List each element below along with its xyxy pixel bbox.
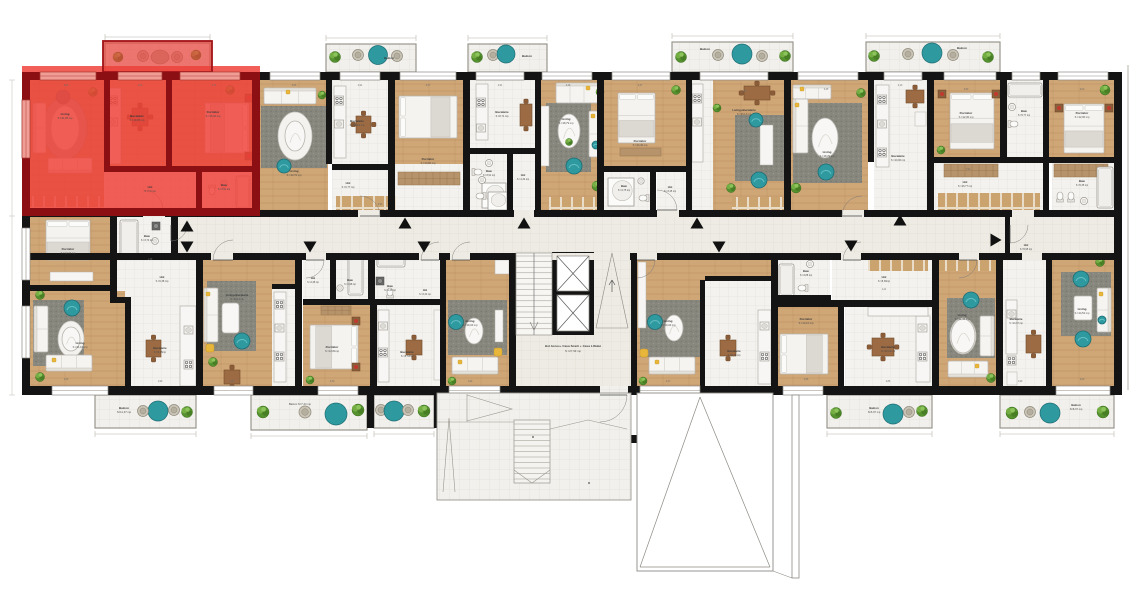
svg-text:Hol: Hol: [882, 275, 887, 279]
svg-text:Living: Living: [958, 313, 967, 317]
svg-text:3,87: 3,87: [230, 381, 235, 383]
svg-text:S =3,74 mp: S =3,74 mp: [141, 239, 154, 242]
svg-text:Hol: Hol: [521, 173, 526, 177]
svg-text:3,30: 3,30: [330, 381, 335, 383]
svg-text:S =13,60 mp: S =13,60 mp: [421, 161, 436, 165]
svg-text:Living: Living: [664, 319, 673, 323]
svg-text:Balcon: Balcon: [1071, 403, 1081, 407]
svg-text:Balcon: Balcon: [119, 406, 129, 410]
svg-text:Balcon: Balcon: [869, 406, 879, 410]
svg-text:S=11,37 mp: S=11,37 mp: [117, 410, 132, 414]
svg-text:S =1,98 mp: S =1,98 mp: [344, 284, 357, 286]
svg-text:Balcon S=7,44 mp: Balcon S=7,44 mp: [289, 402, 312, 406]
svg-text:S =10,12 mp: S =10,12 mp: [350, 123, 365, 127]
svg-text:Baie: Baie: [347, 278, 353, 282]
svg-text:1,90: 1,90: [158, 381, 163, 383]
svg-text:Dormitor: Dormitor: [326, 345, 339, 349]
svg-text:3,48: 3,48: [566, 85, 571, 87]
svg-text:2,91: 2,91: [498, 85, 503, 87]
svg-text:S =9,05mp: S =9,05mp: [154, 351, 167, 354]
svg-text:S =1,45 mp: S =1,45 mp: [384, 290, 397, 292]
svg-text:Hol: Hol: [963, 180, 968, 184]
svg-text:Dormitor: Dormitor: [422, 157, 435, 161]
svg-text:2,91: 2,91: [358, 85, 363, 87]
svg-text:S =20,13 mp: S =20,13 mp: [737, 113, 752, 116]
svg-text:Hol Acces+ Casa Scarii + Casa: Hol Acces+ Casa Scarii + Casa Liftului: [545, 344, 601, 348]
svg-text:3,71: 3,71: [212, 85, 217, 87]
svg-text:S =5,95 mp: S =5,95 mp: [1020, 248, 1033, 251]
svg-text:S =8,76 mp: S =8,76 mp: [728, 354, 741, 357]
svg-text:Bucatarie: Bucatarie: [881, 345, 895, 349]
svg-text:Living: Living: [1078, 307, 1087, 311]
svg-text:S =8,72mp: S =8,72mp: [401, 355, 414, 358]
svg-text:S =24,14 mp: S =24,14 mp: [230, 298, 244, 301]
svg-text:Hol: Hol: [160, 275, 165, 279]
svg-text:S =13,10 mp: S =13,10 mp: [799, 321, 814, 325]
svg-text:S =4,88 mp: S =4,88 mp: [800, 274, 813, 277]
svg-text:Living: Living: [823, 150, 832, 154]
svg-text:Living: Living: [76, 341, 85, 345]
svg-text:S =14,40 mp: S =14,40 mp: [633, 143, 648, 147]
svg-text:2,10: 2,10: [898, 85, 903, 87]
svg-text:3,17: 3,17: [666, 381, 671, 383]
svg-text:S =18,79 mp: S =18,79 mp: [559, 121, 574, 125]
svg-text:1,90: 1,90: [1018, 381, 1023, 383]
svg-text:Baie: Baie: [621, 184, 627, 188]
svg-text:Hol: Hol: [346, 181, 351, 185]
svg-text:Hol: Hol: [668, 185, 673, 189]
svg-text:Hol: Hol: [1024, 243, 1029, 247]
svg-text:S =4,5e mp: S =4,5e mp: [218, 188, 231, 191]
svg-text:S =12,30 mp: S =12,30 mp: [959, 115, 974, 119]
svg-text:Bucatarie: Bucatarie: [130, 114, 144, 118]
svg-text:Bucatarie: Bucatarie: [400, 350, 414, 354]
svg-text:S =19,34 mp: S =19,34 mp: [463, 323, 478, 327]
svg-text:4,21: 4,21: [742, 91, 747, 93]
svg-text:3,80: 3,80: [964, 89, 969, 91]
svg-text:S =12,81mp: S =12,81mp: [325, 349, 340, 353]
svg-text:Dormitor: Dormitor: [634, 139, 647, 143]
svg-text:S =3,34 mp: S =3,34 mp: [419, 294, 432, 296]
svg-text:Bucatarie: Bucatarie: [727, 349, 741, 353]
svg-text:3,45: 3,45: [824, 89, 829, 91]
svg-text:Hol: Hol: [148, 185, 153, 189]
svg-text:Baie: Baie: [387, 284, 393, 288]
svg-text:Dormitor: Dormitor: [960, 111, 973, 115]
svg-text:5,93: 5,93: [378, 204, 383, 206]
svg-text:Balcon: Balcon: [700, 47, 710, 51]
svg-text:1,38: 1,38: [148, 259, 153, 261]
svg-text:3,47: 3,47: [638, 85, 643, 87]
svg-text:1,90: 1,90: [64, 379, 69, 381]
svg-text:3,05: 3,05: [64, 85, 69, 87]
svg-text:S =2,38 mp: S =2,38 mp: [307, 282, 320, 284]
svg-text:Balcon: Balcon: [522, 54, 532, 58]
svg-text:Baie: Baie: [1079, 179, 1085, 183]
svg-text:S =10,07 mp: S =10,07 mp: [1009, 322, 1023, 325]
svg-text:S =19,34 mp: S =19,34 mp: [661, 323, 676, 327]
svg-text:S =6,77 mp: S =6,77 mp: [342, 186, 355, 189]
svg-text:S =8,71 mp: S =8,71 mp: [496, 115, 509, 118]
svg-text:1,21: 1,21: [882, 289, 887, 291]
svg-text:S=8,07 mp: S=8,07 mp: [1070, 407, 1083, 411]
svg-text:Living+Bucatarie: Living+Bucatarie: [732, 108, 756, 112]
svg-text:S =12,44 mp: S =12,44 mp: [61, 251, 76, 255]
svg-text:S =3,91 mp: S =3,91 mp: [483, 174, 496, 177]
svg-text:S =10,24 mp: S =10,24 mp: [881, 350, 896, 353]
svg-text:S =3,45 mp: S =3,45 mp: [664, 190, 677, 193]
svg-text:Bucatarie: Bucatarie: [153, 346, 167, 350]
svg-text:S =5,35 mp: S =5,35 mp: [1076, 184, 1089, 187]
svg-text:S =21,46 mp: S =21,46 mp: [955, 317, 970, 321]
svg-text:3,37: 3,37: [426, 85, 431, 87]
svg-text:Baie: Baie: [221, 183, 227, 187]
svg-text:S =12,00 mp: S =12,00 mp: [1075, 115, 1090, 119]
svg-text:Bucatarie: Bucatarie: [1010, 317, 1023, 321]
svg-text:7,93: 7,93: [966, 169, 971, 171]
svg-text:S =21,95 mp: S =21,95 mp: [58, 116, 73, 120]
svg-text:1,90: 1,90: [468, 381, 473, 383]
svg-text:Bucatarie: Bucatarie: [891, 154, 905, 158]
svg-text:Baie: Baie: [803, 269, 809, 273]
svg-text:S =5,77 mp: S =5,77 mp: [1018, 114, 1031, 117]
svg-text:Living+Bucatarie: Living+Bucatarie: [226, 293, 249, 297]
svg-text:Baie: Baie: [144, 234, 150, 238]
svg-text:Baie: Baie: [486, 169, 492, 173]
svg-text:S =14,52 mp: S =14,52 mp: [1075, 311, 1090, 315]
svg-text:Living: Living: [61, 112, 70, 116]
svg-text:Balcon: Balcon: [384, 56, 394, 60]
svg-text:Hol: Hol: [423, 288, 428, 292]
svg-text:S =10,00 mp: S =10,00 mp: [891, 159, 906, 162]
svg-text:S =8,36mp: S =8,36mp: [878, 280, 891, 283]
svg-text:S =13,70 mp: S =13,70 mp: [287, 173, 302, 177]
svg-text:S =10,05 mp: S =10,05 mp: [130, 118, 145, 122]
svg-text:Bucatarie: Bucatarie: [350, 119, 364, 123]
svg-text:S =6,38 mp: S =6,38 mp: [156, 280, 169, 283]
svg-text:Dormitor: Dormitor: [1076, 111, 1089, 115]
svg-text:S =1,34 mp: S =1,34 mp: [517, 178, 530, 181]
svg-text:Living: Living: [562, 117, 571, 121]
svg-text:S=6,97 mp: S=6,97 mp: [868, 410, 881, 414]
svg-text:Baie: Baie: [1021, 109, 1027, 113]
svg-text:Hol: Hol: [311, 276, 316, 280]
svg-text:S =4,75 mp: S =4,75 mp: [618, 189, 631, 192]
svg-text:Living: Living: [466, 319, 475, 323]
svg-text:Living: Living: [290, 169, 299, 173]
svg-text:S =7,9 mp: S =7,9 mp: [144, 190, 156, 193]
svg-text:S =27,93 mp: S =27,93 mp: [565, 349, 581, 353]
svg-text:3,00: 3,00: [1080, 89, 1085, 91]
svg-text:Bucatarie: Bucatarie: [495, 110, 509, 114]
svg-text:2,98: 2,98: [804, 379, 809, 381]
svg-text:Dormitor: Dormitor: [800, 317, 813, 321]
svg-text:Dormitor: Dormitor: [62, 247, 75, 251]
svg-text:3,05: 3,05: [292, 85, 297, 87]
svg-text:S =18,29 mp: S =18,29 mp: [820, 154, 835, 158]
svg-text:S =15,20 mp: S =15,20 mp: [206, 114, 221, 118]
svg-text:S =21,16 mp: S =21,16 mp: [73, 345, 88, 349]
svg-text:Dormitor: Dormitor: [207, 110, 220, 114]
svg-text:2,86: 2,86: [886, 381, 891, 383]
svg-text:3,00: 3,00: [1080, 379, 1085, 381]
svg-text:Balcon: Balcon: [957, 46, 967, 50]
svg-text:2,00: 2,00: [138, 85, 143, 87]
svg-text:S =16,77 mp: S =16,77 mp: [958, 185, 973, 188]
